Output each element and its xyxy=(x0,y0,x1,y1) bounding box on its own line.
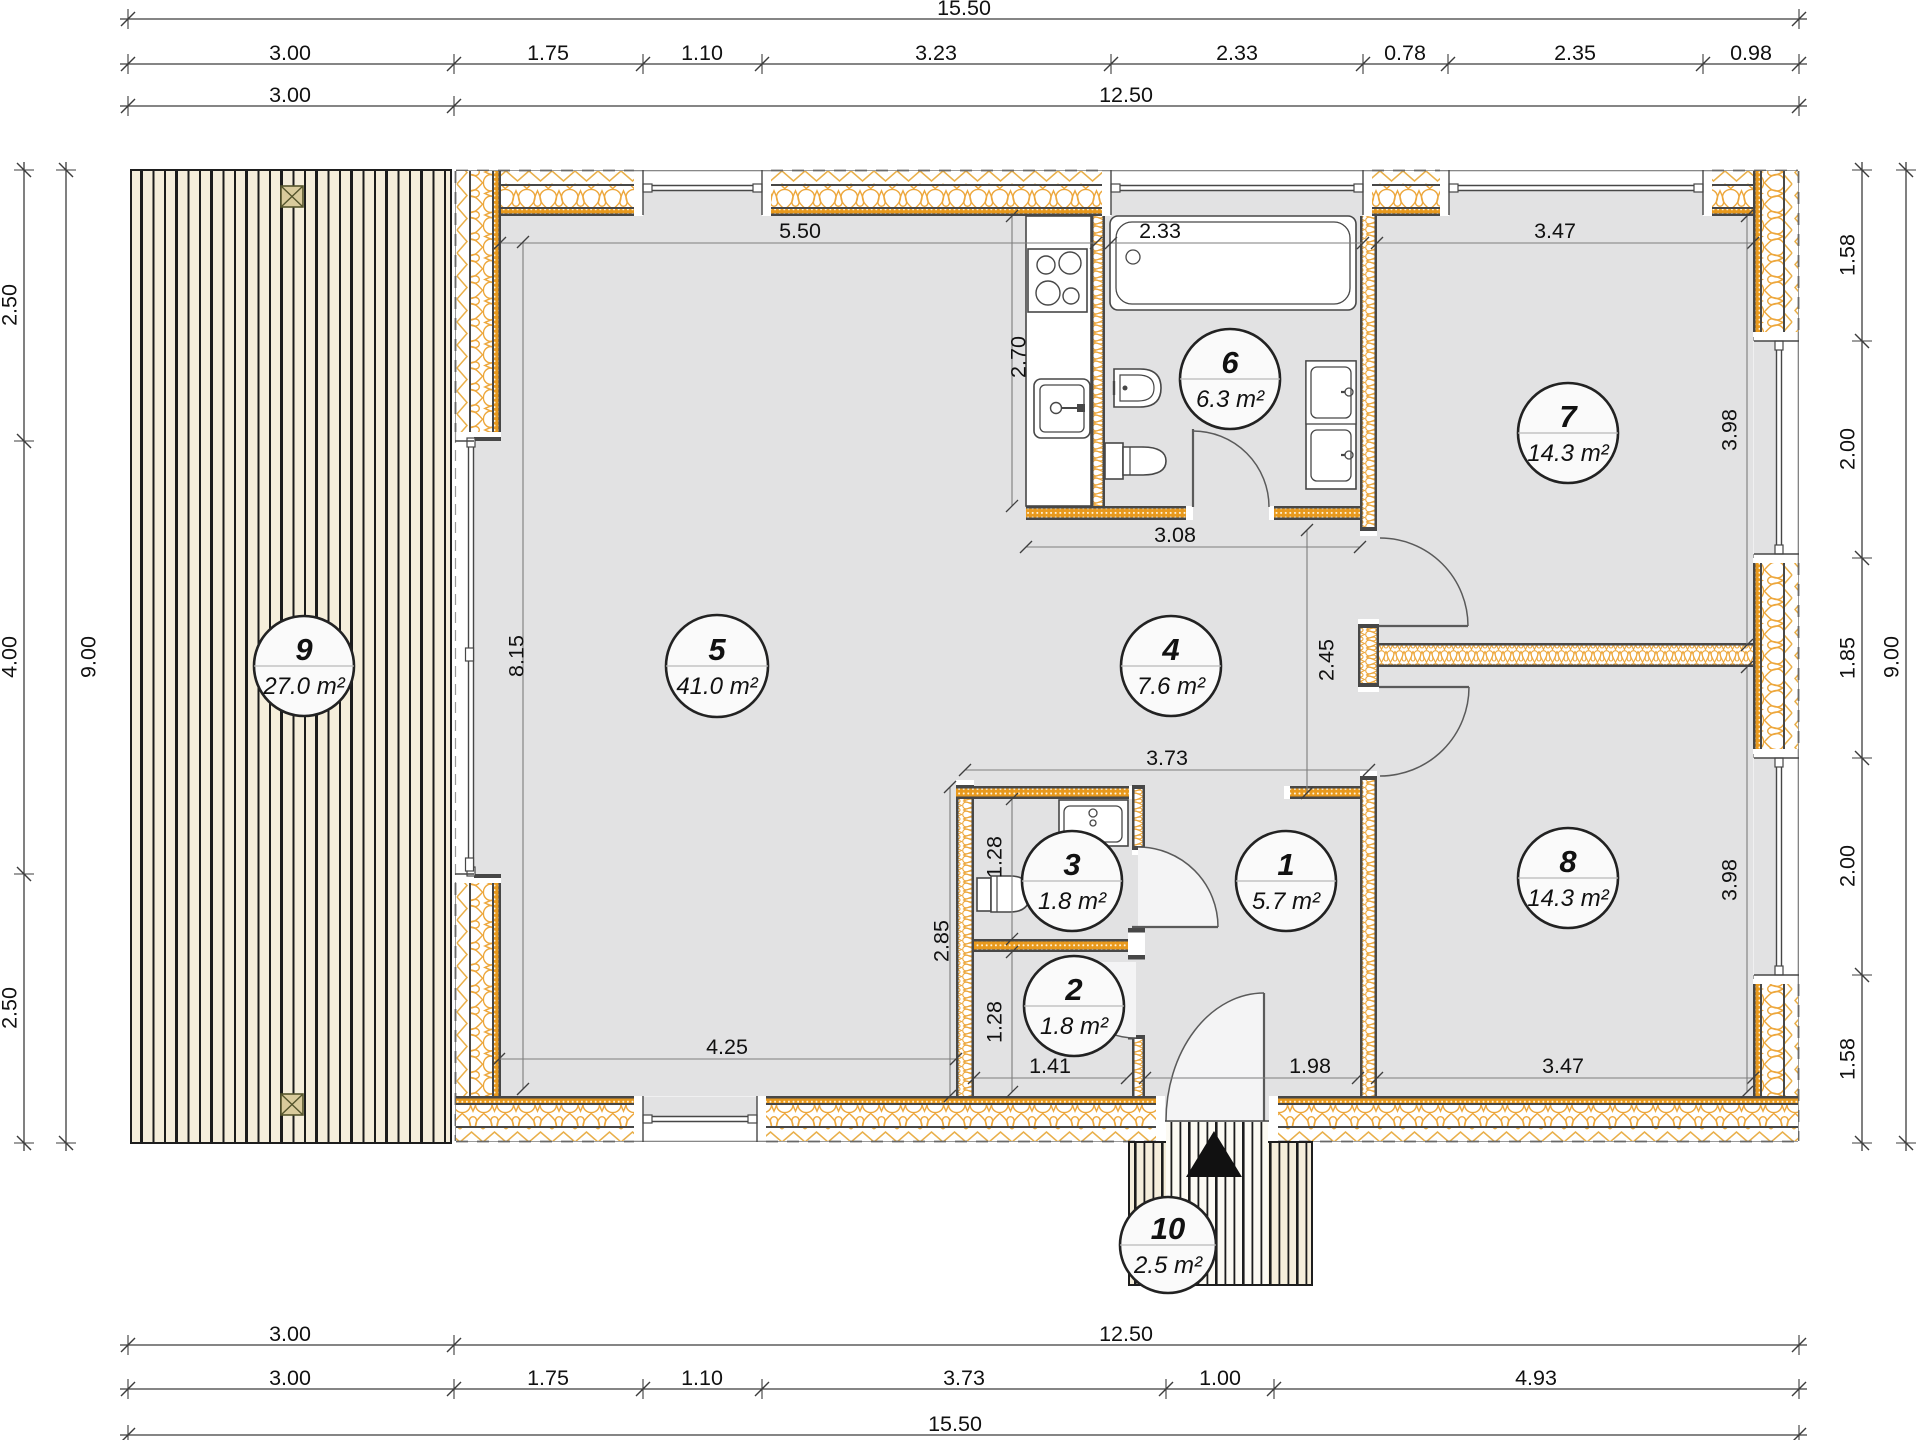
svg-text:3.98: 3.98 xyxy=(1718,409,1742,451)
svg-text:2: 2 xyxy=(1064,972,1082,1007)
svg-text:2.50: 2.50 xyxy=(0,987,22,1029)
svg-text:4: 4 xyxy=(1161,632,1179,667)
svg-text:2.00: 2.00 xyxy=(1836,845,1860,887)
svg-text:2.70: 2.70 xyxy=(1007,336,1031,378)
svg-text:3: 3 xyxy=(1063,847,1080,882)
svg-text:5.50: 5.50 xyxy=(779,219,821,243)
svg-text:2.33: 2.33 xyxy=(1216,41,1258,65)
svg-text:7.6 m²: 7.6 m² xyxy=(1137,673,1206,700)
svg-text:9: 9 xyxy=(295,632,313,667)
svg-text:0.78: 0.78 xyxy=(1384,41,1426,65)
svg-text:15.50: 15.50 xyxy=(928,1412,982,1436)
svg-text:6.3 m²: 6.3 m² xyxy=(1196,386,1265,413)
svg-text:3.23: 3.23 xyxy=(915,41,957,65)
svg-text:3.00: 3.00 xyxy=(269,1322,311,1346)
svg-text:6: 6 xyxy=(1221,345,1239,380)
svg-text:3.47: 3.47 xyxy=(1534,219,1576,243)
svg-text:14.3 m²: 14.3 m² xyxy=(1527,440,1609,467)
svg-text:3.98: 3.98 xyxy=(1718,859,1742,901)
svg-text:2.45: 2.45 xyxy=(1315,639,1339,681)
svg-text:1.98: 1.98 xyxy=(1289,1054,1331,1078)
svg-text:3.73: 3.73 xyxy=(943,1366,985,1390)
svg-text:1.8 m²: 1.8 m² xyxy=(1040,1013,1109,1040)
svg-text:3.08: 3.08 xyxy=(1154,523,1196,547)
svg-text:2.50: 2.50 xyxy=(0,284,22,326)
svg-text:1.10: 1.10 xyxy=(681,1366,723,1390)
svg-text:2.33: 2.33 xyxy=(1139,219,1181,243)
svg-text:1.28: 1.28 xyxy=(983,836,1007,878)
svg-text:1.8 m²: 1.8 m² xyxy=(1038,888,1107,915)
svg-text:2.00: 2.00 xyxy=(1836,428,1860,470)
svg-text:4.93: 4.93 xyxy=(1515,1366,1557,1390)
svg-text:27.0 m²: 27.0 m² xyxy=(262,673,345,700)
svg-text:12.50: 12.50 xyxy=(1099,83,1153,107)
svg-text:1.75: 1.75 xyxy=(527,1366,569,1390)
svg-text:3.00: 3.00 xyxy=(269,83,311,107)
svg-text:15.50: 15.50 xyxy=(937,0,991,20)
svg-text:12.50: 12.50 xyxy=(1099,1322,1153,1346)
svg-text:1.75: 1.75 xyxy=(527,41,569,65)
svg-text:1.10: 1.10 xyxy=(681,41,723,65)
svg-text:3.00: 3.00 xyxy=(269,41,311,65)
svg-text:1.28: 1.28 xyxy=(983,1001,1007,1043)
svg-text:9.00: 9.00 xyxy=(1880,636,1904,678)
svg-text:10: 10 xyxy=(1151,1211,1185,1246)
svg-text:4.25: 4.25 xyxy=(706,1035,748,1059)
svg-text:7: 7 xyxy=(1559,399,1578,434)
svg-text:1.00: 1.00 xyxy=(1199,1366,1241,1390)
svg-text:5: 5 xyxy=(708,632,726,667)
svg-text:1.58: 1.58 xyxy=(1836,1038,1860,1080)
svg-text:1.41: 1.41 xyxy=(1029,1054,1071,1078)
svg-text:41.0 m²: 41.0 m² xyxy=(676,673,758,700)
svg-text:8.15: 8.15 xyxy=(505,635,529,677)
svg-text:14.3 m²: 14.3 m² xyxy=(1527,885,1609,912)
svg-text:2.85: 2.85 xyxy=(930,920,954,962)
svg-text:1: 1 xyxy=(1277,847,1294,882)
svg-text:8: 8 xyxy=(1559,844,1577,879)
svg-text:4.00: 4.00 xyxy=(0,636,22,678)
svg-text:5.7 m²: 5.7 m² xyxy=(1252,888,1321,915)
svg-text:1.58: 1.58 xyxy=(1836,234,1860,276)
svg-text:2.5 m²: 2.5 m² xyxy=(1133,1252,1203,1279)
svg-text:3.47: 3.47 xyxy=(1542,1054,1584,1078)
svg-text:2.35: 2.35 xyxy=(1554,41,1596,65)
svg-text:1.85: 1.85 xyxy=(1836,637,1860,679)
svg-text:3.00: 3.00 xyxy=(269,1366,311,1390)
svg-text:3.73: 3.73 xyxy=(1146,746,1188,770)
svg-text:9.00: 9.00 xyxy=(77,636,101,678)
svg-text:0.98: 0.98 xyxy=(1730,41,1772,65)
